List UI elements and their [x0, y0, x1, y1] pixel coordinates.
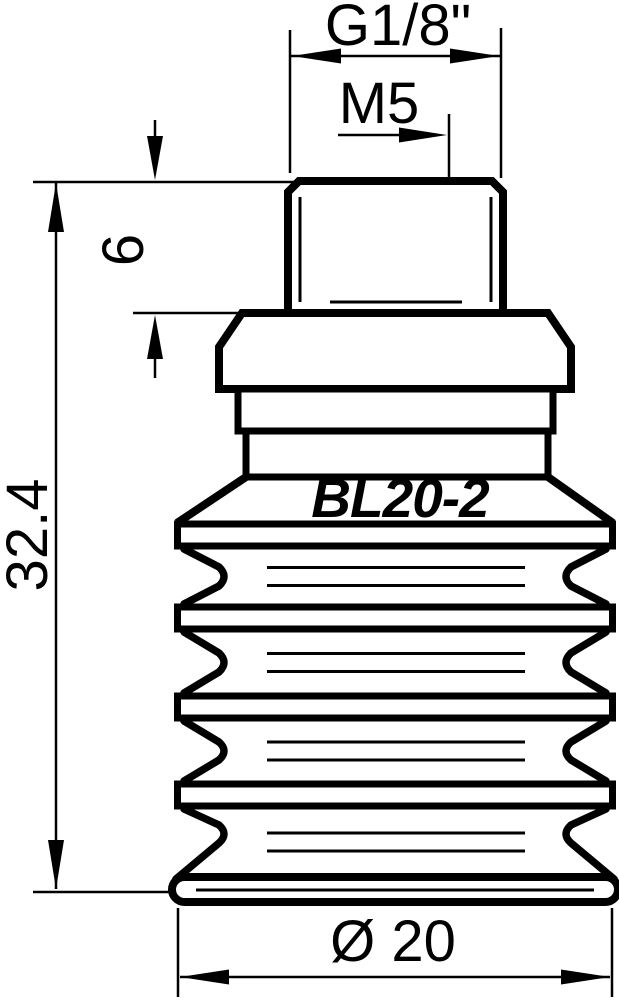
thread-length-label: 6 [91, 234, 156, 266]
bellows-suction-cup-drawing: G1/8" M5 6 [0, 0, 619, 1000]
arrowhead-up [48, 183, 64, 232]
bellows-rim-4 [178, 784, 613, 806]
bellows-fold-3 [184, 721, 606, 781]
arrowhead-left [180, 970, 229, 985]
bellows-fold-1 [184, 549, 606, 604]
arrowhead-up [147, 315, 163, 359]
overall-height-label: 32.4 [0, 479, 60, 592]
bellows-fold-2 [184, 632, 606, 693]
bellows-rim-2 [178, 607, 613, 629]
suction-cup-outline: BL20-2 [172, 181, 618, 902]
arrowhead-right [399, 128, 447, 143]
bellows-fold-4 [176, 809, 614, 879]
arrowhead-down [147, 136, 163, 180]
collar-flange [219, 313, 571, 389]
dimension-thread-m5: M5 [338, 71, 449, 179]
threaded-stud [288, 181, 503, 313]
bellows-top-flare-left [177, 477, 246, 523]
arrowhead-right [561, 970, 610, 985]
dimension-overall-height: 32.4 [0, 183, 170, 892]
thread-dimension-label: G1/8" [325, 0, 471, 58]
technical-drawing-canvas: G1/8" M5 6 [0, 0, 619, 1000]
m5-dimension-label: M5 [339, 71, 420, 136]
dimension-annotations: G1/8" M5 6 [0, 0, 612, 997]
bellows-top-flare-right [548, 477, 613, 523]
part-marking: BL20-2 [311, 467, 490, 529]
bellows-rim-3 [178, 696, 613, 718]
dimension-diameter: Ø 20 [178, 908, 612, 997]
arrowhead-down [48, 840, 64, 889]
collar-step-2 [238, 389, 553, 431]
diameter-label: Ø 20 [330, 909, 456, 974]
